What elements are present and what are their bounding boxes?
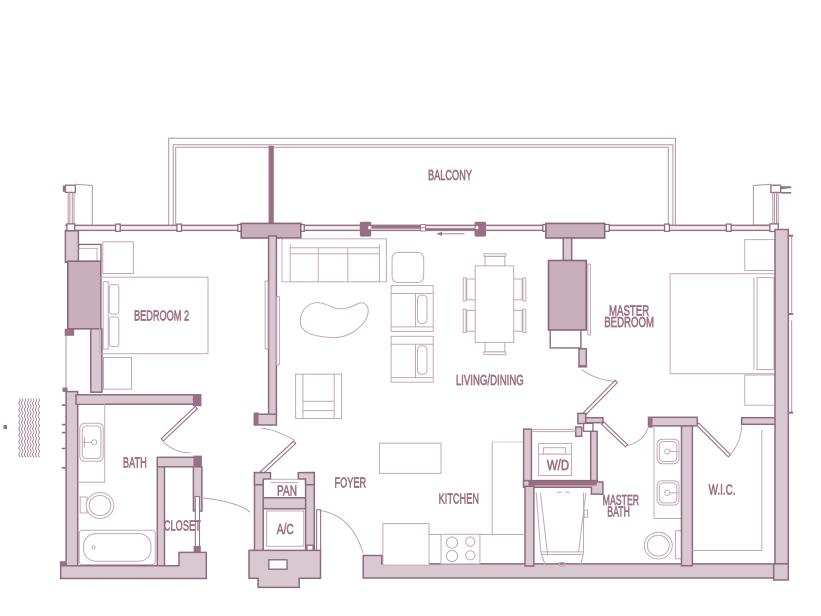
svg-text:BEDROOM 2: BEDROOM 2 xyxy=(134,307,189,324)
svg-text:FOYER: FOYER xyxy=(334,474,366,491)
svg-text:PAN: PAN xyxy=(277,483,297,499)
svg-text:BATH: BATH xyxy=(123,454,147,471)
svg-text:KITCHEN: KITCHEN xyxy=(439,491,479,508)
svg-text:A/C: A/C xyxy=(277,521,294,537)
svg-text:BATH: BATH xyxy=(607,503,630,520)
svg-text:W.I.C.: W.I.C. xyxy=(709,482,736,498)
svg-text:W/D: W/D xyxy=(547,457,569,474)
svg-text:BEDROOM: BEDROOM xyxy=(604,314,654,331)
svg-text:BALCONY: BALCONY xyxy=(428,167,472,184)
svg-text:CLOSET: CLOSET xyxy=(164,517,201,534)
svg-text:LIVING/DINING: LIVING/DINING xyxy=(456,372,524,389)
